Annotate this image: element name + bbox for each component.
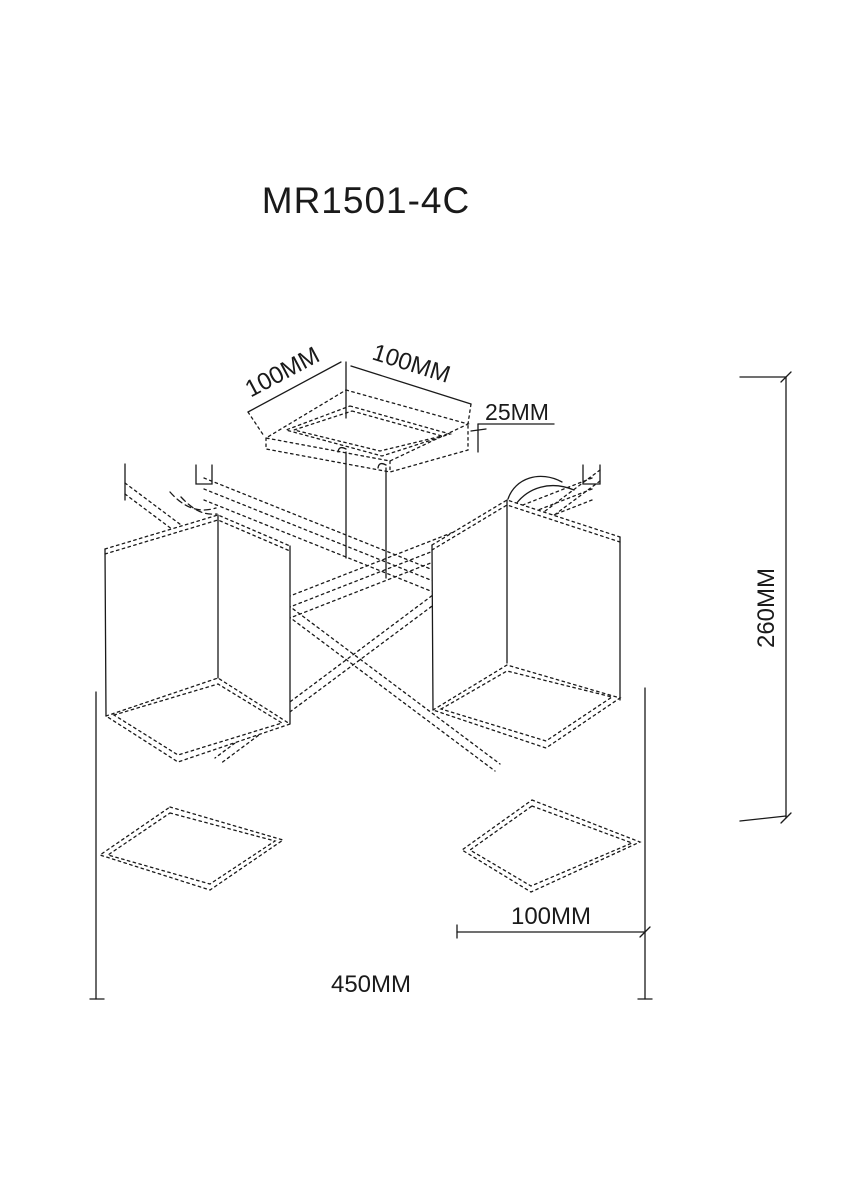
dim-label-100mm-bottom: 100MM	[511, 903, 591, 930]
dim-label-450mm: 450MM	[331, 971, 411, 998]
left-diffuser-panel	[100, 807, 283, 890]
left-shade	[105, 515, 290, 762]
dim-label-25mm: 25MM	[485, 399, 549, 425]
model-number-title: MR1501-4C	[262, 180, 470, 221]
dimension-canopy-thickness: 25MM	[471, 399, 554, 452]
fixture-technical-drawing: MR1501-4C	[0, 0, 848, 1200]
dim-label-canopy-right: 100MM	[369, 339, 453, 389]
right-shade	[432, 500, 620, 748]
dim-label-260mm: 260MM	[753, 568, 780, 648]
ceiling-canopy	[266, 390, 468, 472]
right-diffuser-panel	[462, 800, 640, 892]
dimension-shade-width: 100MM	[457, 903, 650, 938]
arm-end-brackets	[125, 464, 600, 500]
diagram-page: MR1501-4C	[0, 0, 848, 1200]
dimension-fixture-height: 260MM	[740, 372, 791, 823]
